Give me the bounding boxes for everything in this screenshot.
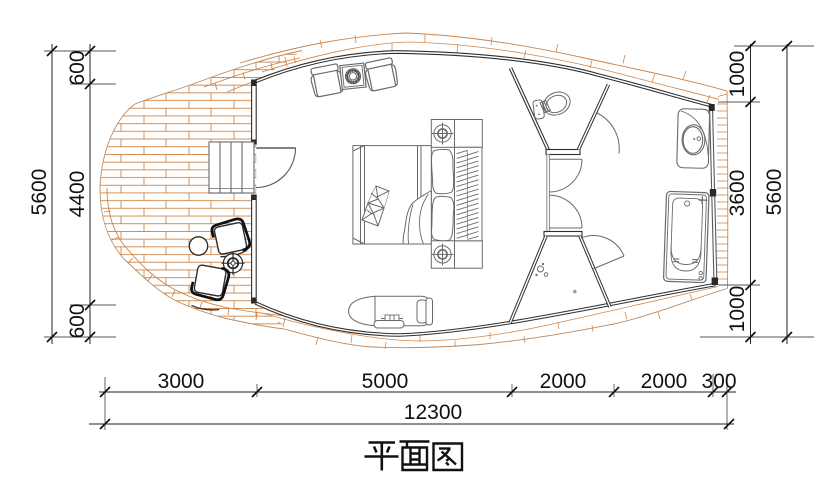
svg-text:1000: 1000 bbox=[726, 51, 749, 98]
svg-text:1000: 1000 bbox=[726, 286, 749, 333]
svg-text:12300: 12300 bbox=[404, 401, 462, 424]
svg-text:5000: 5000 bbox=[362, 370, 409, 393]
svg-text:600: 600 bbox=[66, 303, 89, 338]
svg-text:5600: 5600 bbox=[28, 169, 51, 216]
svg-text:3600: 3600 bbox=[726, 170, 749, 217]
svg-text:5600: 5600 bbox=[763, 169, 786, 216]
svg-text:3000: 3000 bbox=[158, 370, 205, 393]
svg-text:300: 300 bbox=[701, 370, 736, 393]
svg-text:2000: 2000 bbox=[540, 370, 587, 393]
svg-text:4400: 4400 bbox=[66, 171, 89, 218]
svg-text:600: 600 bbox=[66, 50, 89, 85]
svg-text:2000: 2000 bbox=[641, 370, 688, 393]
